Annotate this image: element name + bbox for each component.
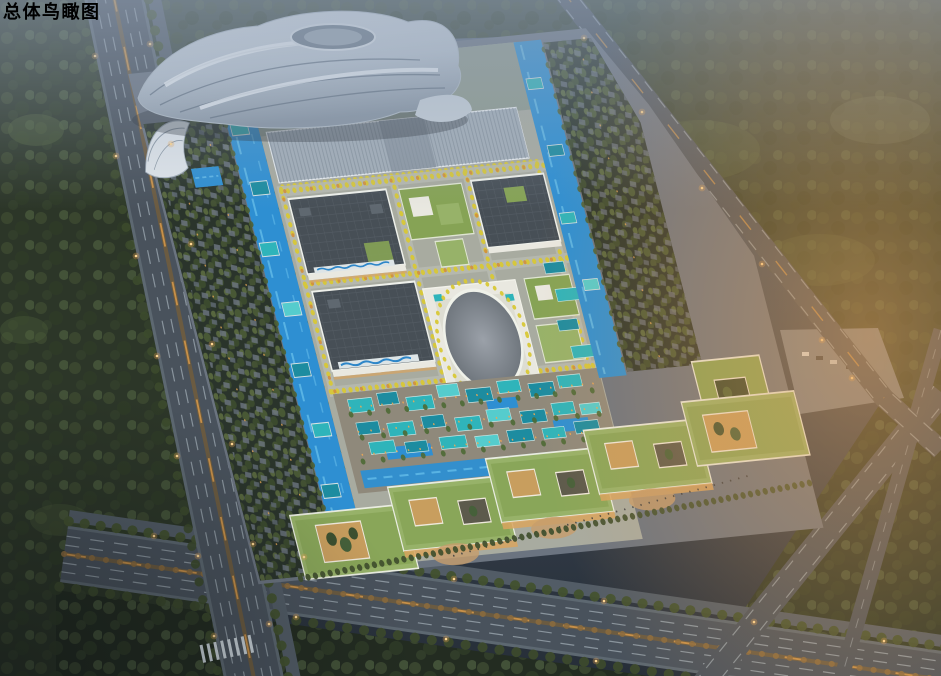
aerial-rendering-image: [0, 0, 941, 676]
page-title: 总体鸟瞰图: [3, 2, 101, 24]
hall-d: [312, 282, 437, 380]
aerial-rendering-page: 总体鸟瞰图: [0, 0, 941, 676]
